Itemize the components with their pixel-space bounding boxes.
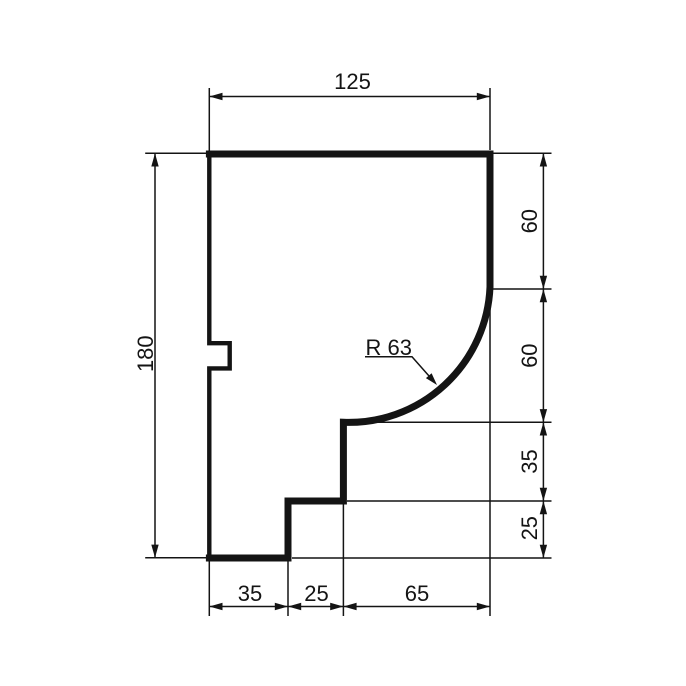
svg-text:35: 35 [238, 581, 262, 606]
svg-text:25: 25 [517, 516, 542, 540]
svg-text:R 63: R 63 [366, 335, 412, 360]
svg-text:125: 125 [334, 69, 371, 94]
svg-text:60: 60 [517, 209, 542, 233]
svg-text:60: 60 [517, 343, 542, 367]
svg-text:65: 65 [405, 581, 429, 606]
svg-text:25: 25 [304, 581, 328, 606]
svg-text:180: 180 [133, 335, 158, 372]
svg-text:35: 35 [517, 449, 542, 473]
